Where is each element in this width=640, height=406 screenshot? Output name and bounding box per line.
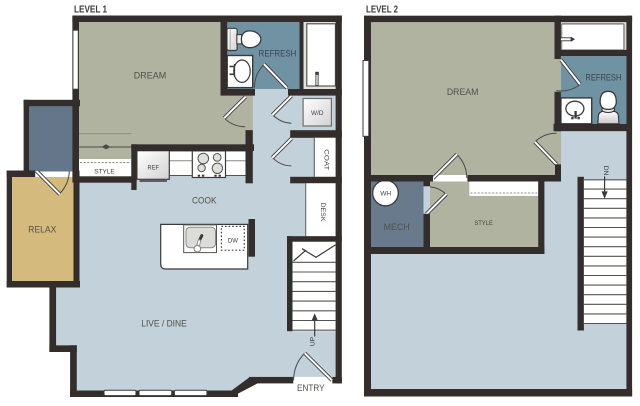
svg-text:ENTRY: ENTRY: [297, 383, 325, 393]
svg-text:W/D: W/D: [311, 110, 324, 117]
svg-text:DESK: DESK: [319, 203, 326, 222]
svg-text:LEVEL 1: LEVEL 1: [74, 4, 107, 16]
svg-text:STYLE: STYLE: [474, 220, 493, 227]
svg-text:DREAM: DREAM: [447, 87, 479, 97]
svg-text:LEVEL 2: LEVEL 2: [366, 4, 398, 16]
svg-text:REFRESH: REFRESH: [259, 49, 297, 59]
svg-text:DW: DW: [228, 237, 239, 244]
svg-text:REFRESH: REFRESH: [585, 72, 621, 82]
svg-text:COAT: COAT: [323, 149, 330, 170]
svg-text:MECH: MECH: [384, 222, 410, 232]
svg-text:UP: UP: [310, 336, 317, 346]
svg-text:STYLE: STYLE: [94, 168, 115, 175]
svg-text:RELAX: RELAX: [28, 224, 56, 234]
svg-text:LIVE / DINE: LIVE / DINE: [141, 318, 187, 328]
svg-text:DN: DN: [602, 166, 609, 176]
svg-text:WH: WH: [380, 191, 391, 198]
svg-text:DREAM: DREAM: [134, 71, 167, 81]
svg-text:COOK: COOK: [192, 195, 217, 205]
svg-text:REF: REF: [148, 165, 160, 172]
